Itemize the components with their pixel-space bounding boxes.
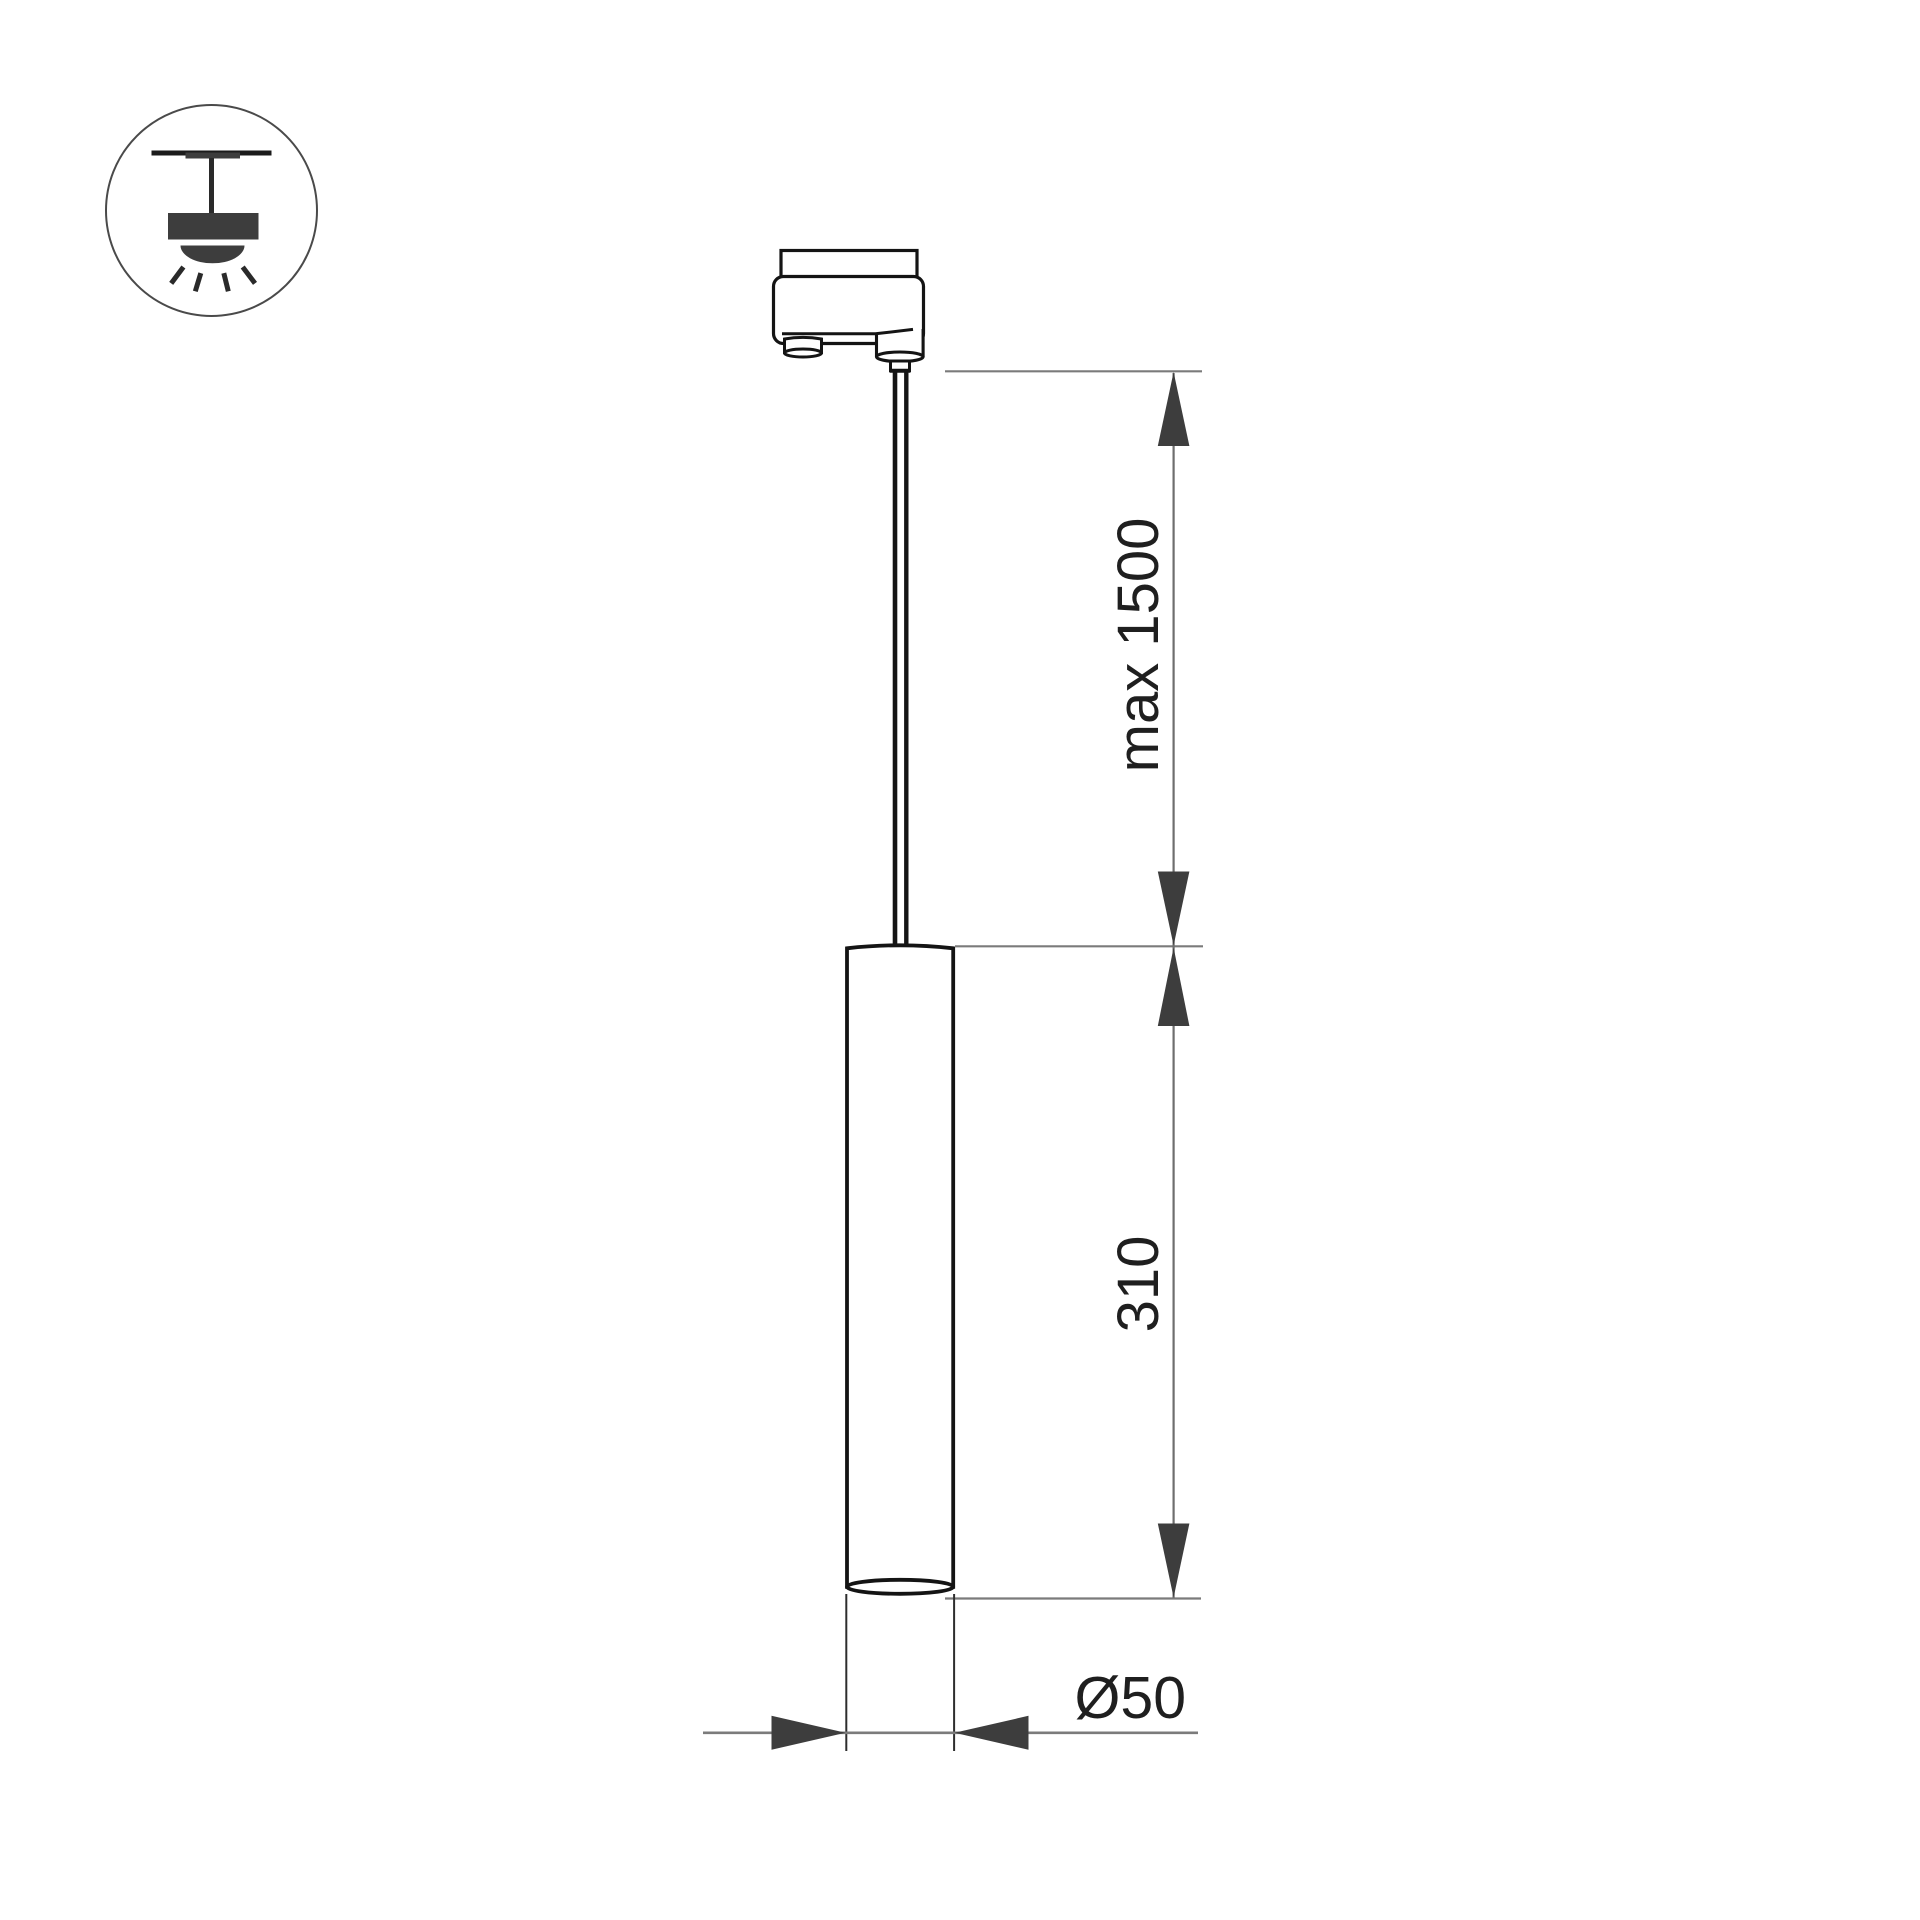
svg-text:310: 310 [1106, 1236, 1171, 1333]
svg-text:max 1500: max 1500 [1106, 518, 1171, 773]
svg-text:Ø50: Ø50 [1075, 1665, 1187, 1731]
